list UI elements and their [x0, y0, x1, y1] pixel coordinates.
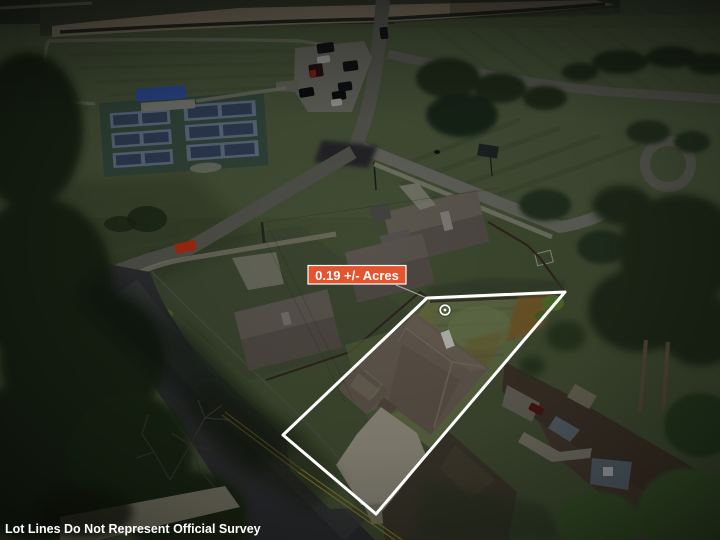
svg-text:0.19 +/- Acres: 0.19 +/- Acres: [315, 268, 399, 283]
svg-text:Lot Lines Do Not Represent Off: Lot Lines Do Not Represent Official Surv…: [5, 522, 261, 536]
